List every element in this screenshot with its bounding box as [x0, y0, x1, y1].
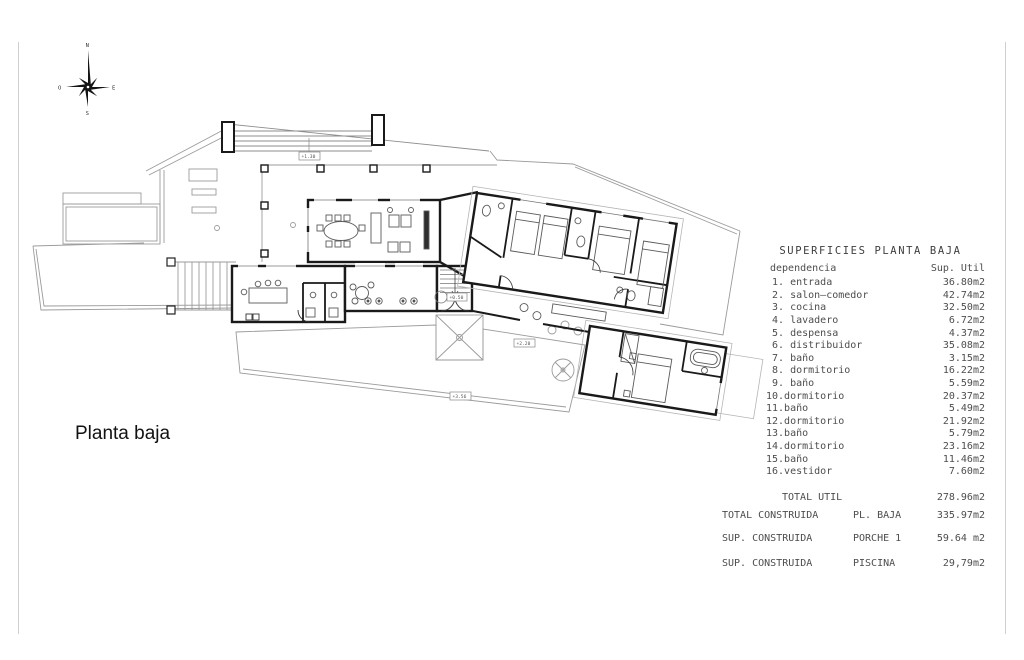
- construida-value: 335.97m2: [929, 510, 985, 521]
- compass-e-label: E: [112, 86, 115, 92]
- room-label: 15.baño: [766, 454, 808, 467]
- superficies-row: 2. salon—comedor42.74m2: [722, 290, 985, 303]
- room-label: 13.baño: [766, 428, 808, 441]
- corridor-sideboard: [552, 304, 607, 321]
- room-label: 16.vestidor: [766, 466, 832, 479]
- room-label: 4. lavadero: [766, 315, 838, 328]
- compass-rose: N S E O: [58, 43, 115, 117]
- superficies-row: 9. baño5.59m2: [722, 378, 985, 391]
- room-area-value: 5.79m2: [949, 428, 985, 441]
- room-area-value: 23.16m2: [943, 441, 985, 454]
- superficies-row: 13.baño5.79m2: [722, 428, 985, 441]
- room-label: 10.dormitorio: [766, 391, 844, 404]
- pergola: [228, 124, 489, 151]
- room-area-value: 3.15m2: [949, 353, 985, 366]
- construida-sublabel: PORCHE 1: [853, 533, 929, 544]
- svg-text:+2.20: +2.20: [517, 341, 531, 347]
- room-area-value: 20.37m2: [943, 391, 985, 404]
- superficies-title: SUPERFICIES PLANTA BAJA: [756, 245, 985, 258]
- construida-label: TOTAL CONSTRUIDA: [722, 510, 853, 521]
- room-label: 14.dormitorio: [766, 441, 844, 454]
- construida-row: SUP. CONSTRUIDAPISCINA29,79m2: [722, 558, 985, 569]
- room-area-value: 21.92m2: [943, 416, 985, 429]
- lower-terrace: [236, 321, 585, 412]
- room-area-value: 42.74m2: [943, 290, 985, 303]
- tv-unit: [424, 211, 429, 249]
- superficies-row: 5. despensa4.37m2: [722, 328, 985, 341]
- level-marker: +2.20: [514, 339, 535, 347]
- room-label: 5. despensa: [766, 328, 838, 341]
- superficies-row: 1. entrada36.80m2: [722, 277, 985, 290]
- plan-title: Planta baja: [75, 423, 170, 445]
- room-area-value: 5.59m2: [949, 378, 985, 391]
- room-label: 1. entrada: [766, 277, 832, 290]
- superficies-header: dependencia Sup. Util: [722, 263, 985, 276]
- superficies-row: 12.dormitorio21.92m2: [722, 416, 985, 429]
- exterior-stair-left: [170, 262, 236, 310]
- col-dependencia: dependencia: [770, 263, 836, 276]
- svg-text:+1.30: +1.30: [302, 154, 316, 160]
- room-area-value: 4.37m2: [949, 328, 985, 341]
- construida-sublabel: PL. BAJA: [853, 510, 929, 521]
- stair-posts: [167, 258, 175, 314]
- superficies-row: 10.dormitorio20.37m2: [722, 391, 985, 404]
- room-label: 6. distribuidor: [766, 340, 862, 353]
- room-label: 3. cocina: [766, 302, 826, 315]
- room-area-value: 6.72m2: [949, 315, 985, 328]
- superficies-row: 3. cocina32.50m2: [722, 302, 985, 315]
- room-label: 8. dormitorio: [766, 365, 850, 378]
- compass-s-label: S: [86, 111, 89, 117]
- room-label: 12.dormitorio: [766, 416, 844, 429]
- room-label: 7. baño: [766, 353, 814, 366]
- room-label: 11.baño: [766, 403, 808, 416]
- svg-text:+3.56: +3.56: [453, 394, 467, 400]
- superficies-row: 6. distribuidor35.08m2: [722, 340, 985, 353]
- total-util-label: TOTAL UTIL: [782, 492, 842, 505]
- construida-row: SUP. CONSTRUIDAPORCHE 159.64 m2: [722, 533, 985, 544]
- superficies-row: 8. dormitorio16.22m2: [722, 365, 985, 378]
- construida-block: TOTAL CONSTRUIDAPL. BAJA335.97m2SUP. CON…: [722, 510, 985, 581]
- construida-value: 29,79m2: [929, 558, 985, 569]
- superficies-row: 11.baño5.49m2: [722, 403, 985, 416]
- room-area-value: 35.08m2: [943, 340, 985, 353]
- construida-value: 59.64 m2: [929, 533, 985, 544]
- svg-text:+0.50: +0.50: [450, 295, 464, 301]
- bedroom-wing: [454, 186, 683, 339]
- superficies-row: 15.baño11.46m2: [722, 454, 985, 467]
- room-area-value: 7.60m2: [949, 466, 985, 479]
- superficies-row: 16.vestidor7.60m2: [722, 466, 985, 479]
- entry-canopy: [436, 315, 483, 360]
- level-marker: +3.56: [450, 392, 471, 400]
- superficies-row: 7. baño3.15m2: [722, 353, 985, 366]
- room-area-value: 36.80m2: [943, 277, 985, 290]
- construida-sublabel: PISCINA: [853, 558, 929, 569]
- room-area-value: 16.22m2: [943, 365, 985, 378]
- compass-o-label: O: [58, 86, 61, 92]
- total-util-row: TOTAL UTIL 278.96m2: [722, 492, 985, 505]
- room-area-value: 32.50m2: [943, 302, 985, 315]
- superficies-table: SUPERFICIES PLANTA BAJA dependencia Sup.…: [722, 245, 985, 504]
- room-area-value: 11.46m2: [943, 454, 985, 467]
- room-area-value: 5.49m2: [949, 403, 985, 416]
- construida-row: TOTAL CONSTRUIDAPL. BAJA335.97m2: [722, 510, 985, 521]
- room-label: 9. baño: [766, 378, 814, 391]
- superficies-row: 14.dormitorio23.16m2: [722, 441, 985, 454]
- room-label: 2. salon—comedor: [766, 290, 868, 303]
- level-marker: +0.50: [447, 293, 467, 301]
- construida-label: SUP. CONSTRUIDA: [722, 558, 853, 569]
- total-util-value: 278.96m2: [937, 492, 985, 505]
- superficies-rows: 1. entrada36.80m2 2. salon—comedor42.74m…: [722, 277, 985, 479]
- room-salon-comedor: [308, 200, 440, 262]
- compass-n-label: N: [86, 43, 89, 49]
- construida-label: SUP. CONSTRUIDA: [722, 533, 853, 544]
- col-sup-util: Sup. Util: [931, 263, 985, 276]
- superficies-row: 4. lavadero6.72m2: [722, 315, 985, 328]
- room-entrada: [345, 266, 437, 311]
